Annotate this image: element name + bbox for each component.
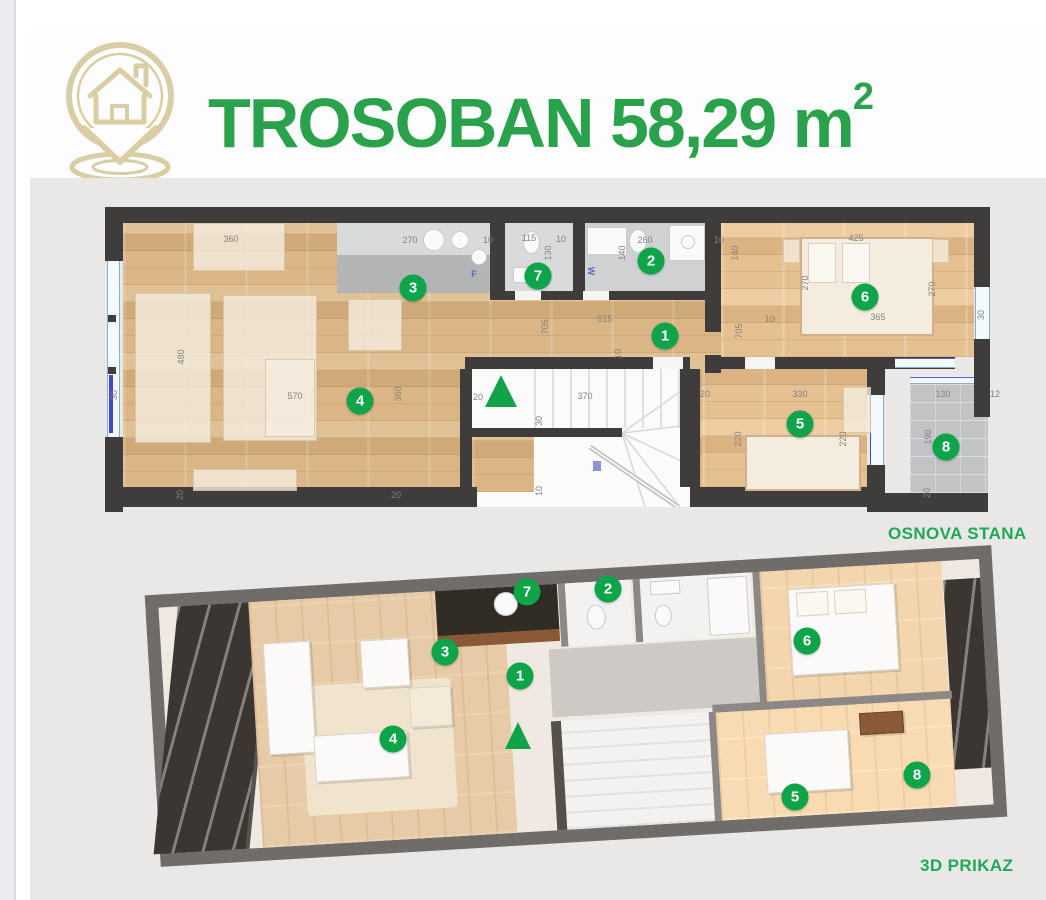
- dimension-label: 705: [540, 319, 550, 334]
- dimension-label: 20: [175, 490, 185, 500]
- dimension-label: 12: [990, 389, 1000, 399]
- room-badge-5: 5: [787, 411, 814, 438]
- dimension-label: 10: [534, 486, 544, 496]
- view3d-bed6-pillow-b: [834, 589, 867, 615]
- view3d-desk-bedroom5: [859, 711, 904, 736]
- dimension-label: 30: [976, 310, 986, 320]
- dimension-label: 10: [613, 349, 623, 359]
- header: TROSOBAN 58,29 m2: [30, 30, 1046, 178]
- view3d-bed6-pillow-a: [796, 591, 829, 617]
- dimension-label: 480: [176, 349, 186, 364]
- dimension-label: 360: [223, 234, 238, 244]
- dimension-label: 10: [765, 314, 775, 324]
- dimension-label: 370: [577, 391, 592, 401]
- dimension-label: 140: [730, 245, 740, 260]
- caption-plan2d: OSNOVA STANA: [888, 524, 1027, 544]
- dimension-label: 30: [109, 390, 119, 400]
- dimension-label: 10: [714, 235, 724, 245]
- view3d-bed-bedroom5: [764, 729, 851, 794]
- view3d-bath-sink: [650, 580, 681, 596]
- dimension-label: 425: [848, 233, 863, 243]
- room-badge-8: 8: [933, 434, 960, 461]
- dimension-label: 365: [870, 312, 885, 322]
- view3d-coffee-table: [409, 685, 453, 727]
- dimension-label: 330: [792, 389, 807, 399]
- dimension-label: 130: [543, 245, 553, 260]
- dimension-label: 190: [923, 429, 933, 444]
- dimension-label: 130: [935, 389, 950, 399]
- dimension-label: 270: [800, 275, 810, 290]
- page-title: TROSOBAN 58,29 m2: [208, 76, 874, 163]
- room-badge-1: 1: [652, 323, 679, 350]
- stairs-up-arrow: [485, 375, 517, 407]
- view3d-armchair: [360, 638, 411, 689]
- dimension-label: 360: [393, 386, 403, 401]
- dimension-label: 20: [391, 490, 401, 500]
- dimension-label: 270: [927, 281, 937, 296]
- house-location-pin-icon: [38, 36, 198, 186]
- dimension-label: 220: [838, 431, 848, 446]
- view3d-corner-sofa: [263, 641, 317, 756]
- appliance-label-F: F: [471, 269, 477, 279]
- room-badge-3: 3: [400, 275, 427, 302]
- dimension-label: 515: [597, 314, 612, 324]
- dimension-label: 570: [287, 391, 302, 401]
- appliance-label-W: W: [586, 267, 596, 276]
- view3d-sofa: [313, 730, 410, 782]
- view3d-bathtub: [707, 576, 750, 636]
- dimension-label: 10: [483, 235, 493, 245]
- dimension-label: 30: [534, 416, 544, 426]
- caption-view3d: 3D PRIKAZ: [920, 856, 1013, 876]
- floor-plan-3d: [145, 545, 1008, 867]
- dimension-label: 20: [473, 392, 483, 402]
- title-superscript: 2: [853, 76, 874, 118]
- view3d-stairwell: [551, 712, 715, 830]
- page-divider-line: [14, 0, 16, 900]
- dimension-label: 140: [617, 245, 627, 260]
- dimension-label: 220: [733, 431, 743, 446]
- room-badge-6: 6: [852, 284, 879, 311]
- page-left-strip: [0, 0, 14, 900]
- room-badge-2: 2: [638, 248, 665, 275]
- floor-plan-2d: 1234567836027010115130101402601014042527…: [105, 207, 990, 512]
- room-badge-4: 4: [347, 388, 374, 415]
- dimension-label: 10: [556, 234, 566, 244]
- dimension-label: 705: [734, 323, 744, 338]
- dimension-label: 20: [922, 488, 932, 498]
- dimension-label: 260: [637, 235, 652, 245]
- room-badge-7: 7: [525, 263, 552, 290]
- dimension-label: 20: [700, 389, 710, 399]
- plan2d-overlays: 1234567836027010115130101402601014042527…: [105, 207, 990, 512]
- dimension-label: 115: [522, 233, 536, 243]
- dimension-label: 270: [402, 235, 417, 245]
